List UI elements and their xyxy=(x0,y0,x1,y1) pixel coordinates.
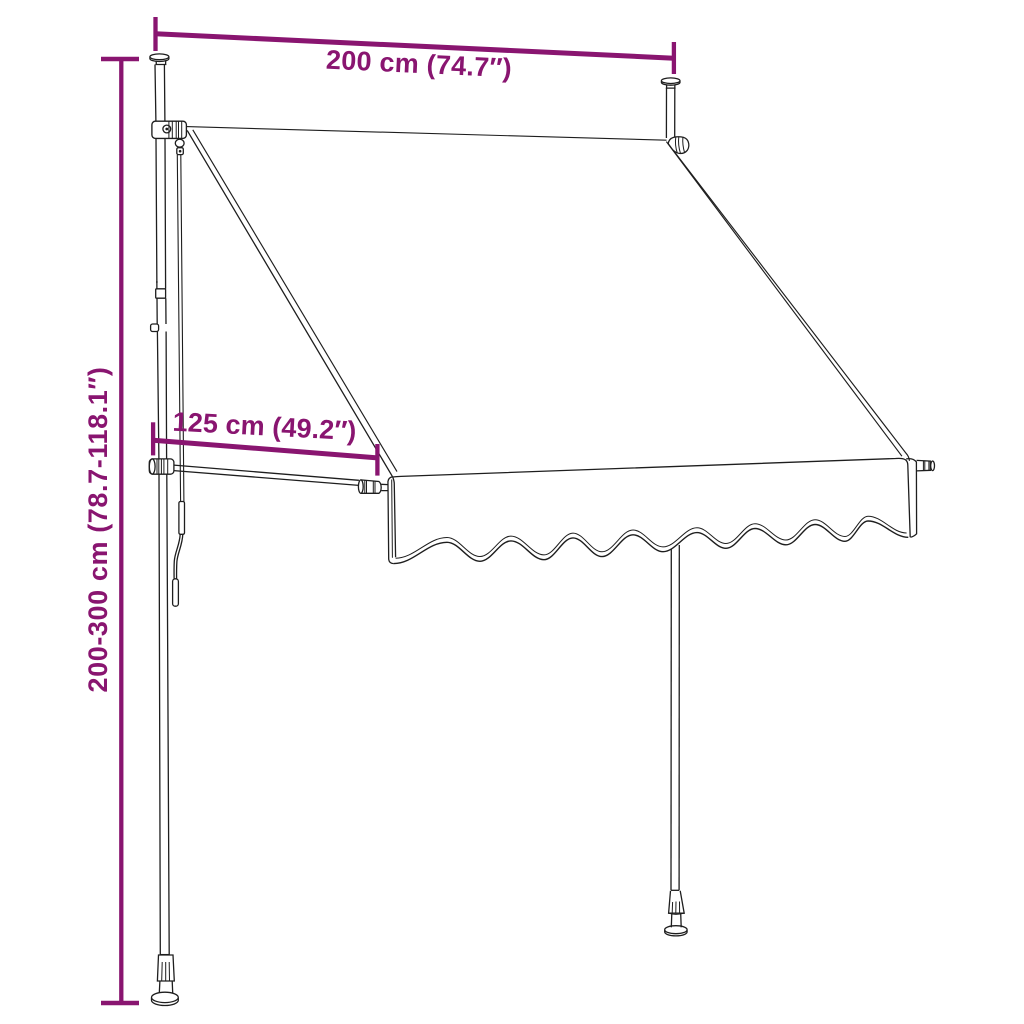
svg-text:200-300 cm (78.7-118.1″): 200-300 cm (78.7-118.1″) xyxy=(83,366,113,692)
